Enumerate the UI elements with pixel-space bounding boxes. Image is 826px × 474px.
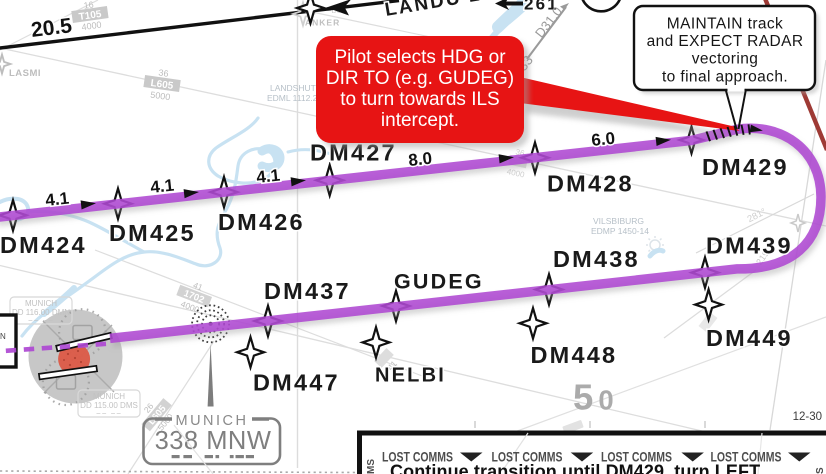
svg-text:12-30: 12-30 (793, 411, 822, 423)
svg-text:VILSBIBURG: VILSBIBURG (593, 216, 644, 226)
svg-text:4.1: 4.1 (149, 176, 174, 197)
svg-text:−− −−: −− −− (28, 316, 54, 325)
svg-text:N: N (0, 332, 6, 341)
svg-text:MAINTAIN track: MAINTAIN track (667, 16, 783, 33)
svg-text:GUDEG: GUDEG (394, 270, 484, 294)
svg-text:DM428: DM428 (547, 171, 634, 197)
svg-text:MUNICH: MUNICH (25, 299, 57, 308)
svg-text:NELBI: NELBI (375, 365, 446, 387)
svg-text:8.0: 8.0 (407, 149, 432, 170)
svg-text:LASMI: LASMI (9, 68, 41, 79)
svg-text:EDML 1112.2: EDML 1112.2 (267, 93, 318, 103)
svg-text:MUNICH: MUNICH (93, 392, 125, 401)
svg-text:and EXPECT RADAR: and EXPECT RADAR (647, 33, 804, 50)
svg-text:DIR TO (e.g. GUDEG): DIR TO (e.g. GUDEG) (326, 68, 514, 89)
svg-text:DM426: DM426 (218, 209, 305, 235)
svg-text:Pilot selects HDG or: Pilot selects HDG or (334, 47, 506, 68)
svg-text:36: 36 (158, 67, 169, 78)
svg-text:to turn towards ILS: to turn towards ILS (340, 89, 499, 110)
svg-text:DM447: DM447 (253, 370, 340, 396)
svg-text:S: S (815, 467, 826, 474)
svg-text:4.1: 4.1 (255, 166, 280, 187)
svg-text:DM448: DM448 (531, 342, 618, 368)
svg-text:Continue transition until DM42: Continue transition until DM429, turn LE… (390, 462, 760, 474)
svg-text:DM439: DM439 (706, 233, 793, 259)
svg-text:MS: MS (366, 459, 377, 474)
svg-text:vectoring: vectoring (692, 51, 759, 68)
svg-text:−− −−: −− −− (96, 409, 122, 418)
svg-text:DM437: DM437 (264, 278, 351, 304)
svg-text:DM429: DM429 (702, 154, 789, 180)
svg-text:DM449: DM449 (706, 325, 793, 351)
svg-text:LANDSHUT: LANDSHUT (270, 83, 316, 93)
svg-text:4.1: 4.1 (44, 189, 69, 210)
svg-text:6.0: 6.0 (590, 129, 615, 150)
svg-text:338 MNW: 338 MNW (155, 427, 272, 455)
svg-text:EDMP 1450-14: EDMP 1450-14 (591, 226, 649, 236)
svg-text:DM425: DM425 (109, 220, 196, 246)
svg-text:DM424: DM424 (0, 232, 87, 258)
svg-text:intercept.: intercept. (381, 110, 459, 131)
svg-text:to final approach.: to final approach. (662, 69, 788, 86)
svg-text:DM438: DM438 (553, 246, 640, 272)
